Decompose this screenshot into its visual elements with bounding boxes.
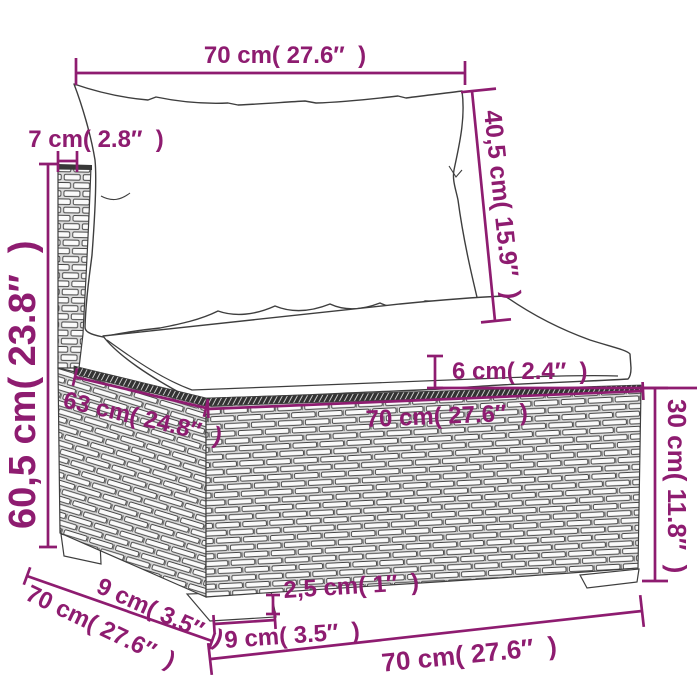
svg-text:30 cm( 11.8″ ): 30 cm( 11.8″ ) [662, 399, 692, 573]
svg-text:7 cm( 2.8″ ): 7 cm( 2.8″ ) [28, 126, 164, 153]
svg-text:6 cm( 2.4″ ): 6 cm( 2.4″ ) [452, 358, 588, 385]
svg-text:70 cm( 27.6″ ): 70 cm( 27.6″ ) [204, 42, 366, 69]
svg-text:60,5 cm( 23.8″ ): 60,5 cm( 23.8″ ) [2, 240, 44, 529]
